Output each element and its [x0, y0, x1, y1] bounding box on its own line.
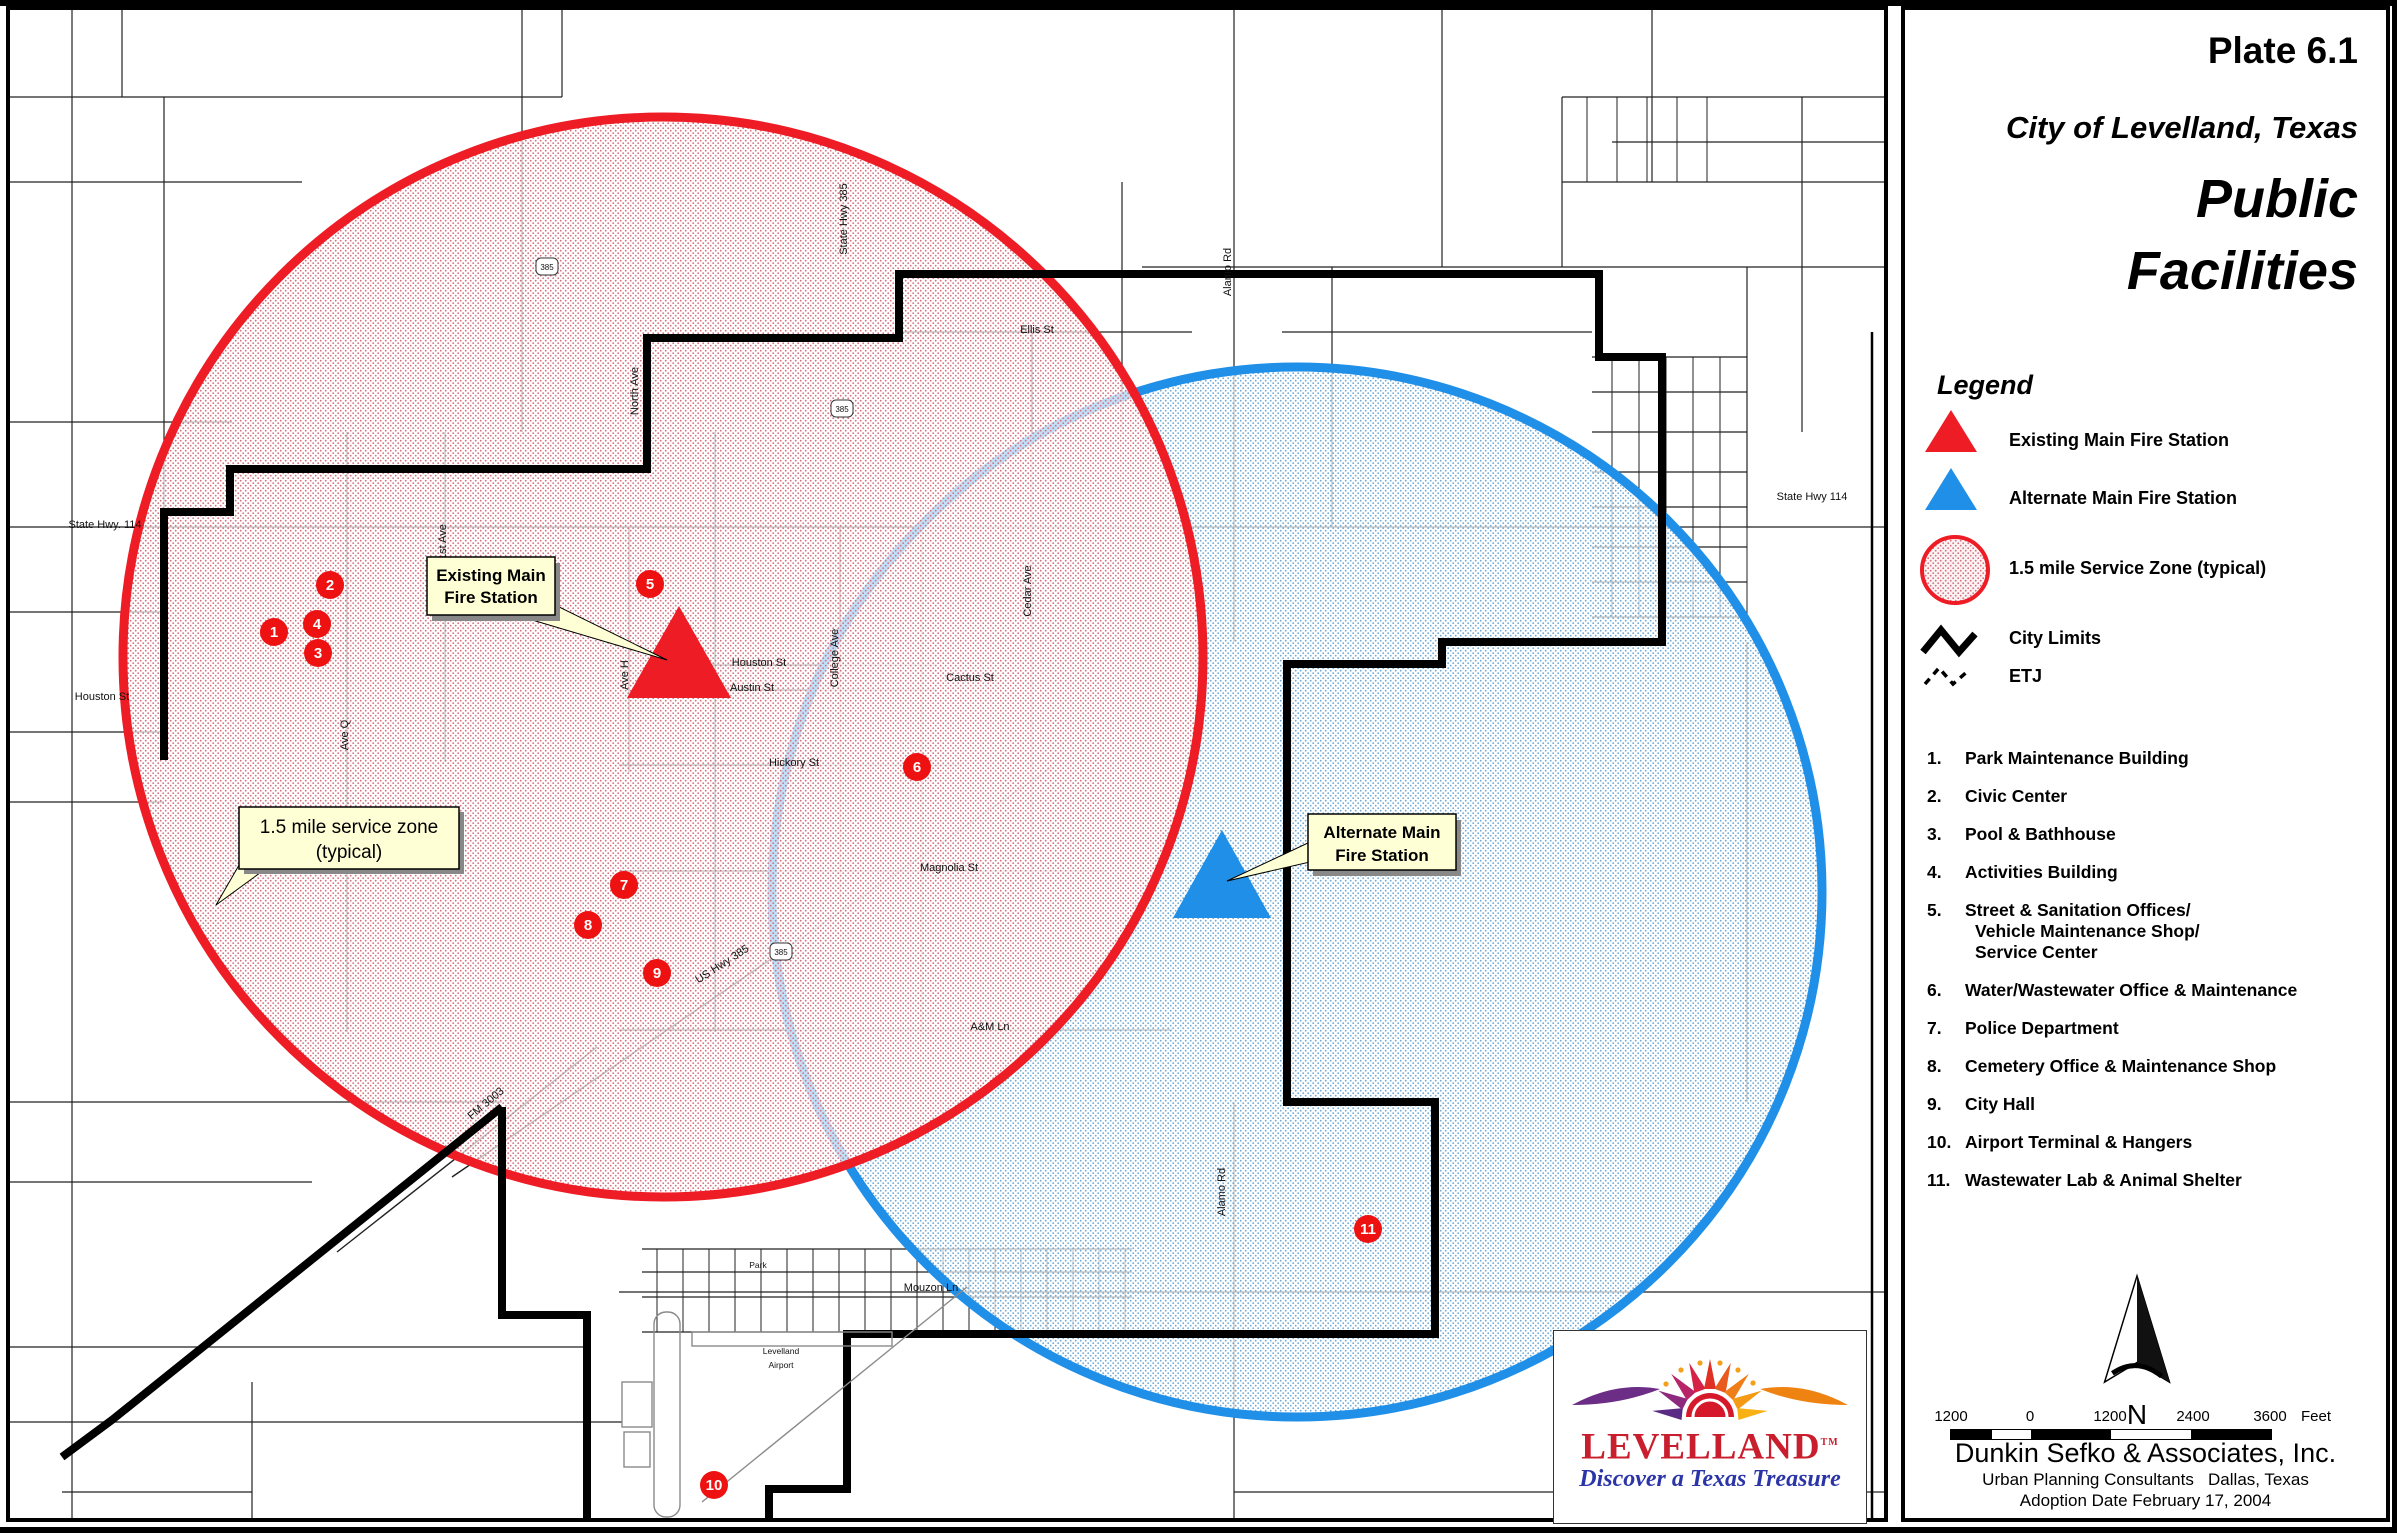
- consultant-subtitle: Urban Planning Consultants Dallas, Texas: [1905, 1470, 2386, 1490]
- legend-item-label: City Limits: [2009, 628, 2101, 649]
- facility-list-item: 6.Water/Wastewater Office & Maintenance: [1927, 980, 2377, 1001]
- facility-number: 1.: [1927, 748, 1965, 769]
- highway-shield-number: 385: [835, 405, 849, 414]
- street-label: A&M Ln: [970, 1021, 1009, 1033]
- highway-shield-number: 385: [774, 948, 788, 957]
- callout-text: Alternate Main: [1323, 823, 1440, 842]
- facility-number: 9.: [1927, 1094, 1965, 1115]
- facility-list-item: 1.Park Maintenance Building: [1927, 748, 2377, 769]
- scale-tick-label: 0: [2026, 1408, 2034, 1425]
- scale-tick-label: 3600: [2253, 1408, 2286, 1425]
- facility-number: 11.: [1927, 1170, 1965, 1191]
- facility-label: Activities Building: [1965, 862, 2118, 883]
- facility-label: Water/Wastewater Office & Maintenance: [1965, 980, 2297, 1001]
- facility-number: 7.: [1927, 1018, 1965, 1039]
- facility-marker-number: 2: [326, 577, 334, 594]
- street-label: College Ave: [829, 629, 841, 688]
- facility-label: City Hall: [1965, 1094, 2035, 1115]
- facility-marker-number: 8: [584, 917, 592, 934]
- facility-label: Civic Center: [1965, 786, 2067, 807]
- street-label: Mouzon Ln: [904, 1282, 958, 1294]
- facility-list-item: 10.Airport Terminal & Hangers: [1927, 1132, 2377, 1153]
- street-label: Park: [749, 1260, 767, 1270]
- facility-number: 2.: [1927, 786, 1965, 807]
- street-label: Levelland: [763, 1346, 800, 1356]
- street-label: North Ave: [629, 367, 641, 415]
- facilities-list: 1.Park Maintenance Building2.Civic Cente…: [1927, 748, 2377, 1208]
- facility-number: 5.: [1927, 900, 1965, 963]
- scale-tick-label: 2400: [2176, 1408, 2209, 1425]
- legend-item-label: Alternate Main Fire Station: [2009, 488, 2237, 509]
- street-label: State Hwy. 114: [69, 519, 142, 531]
- facility-marker-number: 9: [653, 965, 661, 982]
- street-label: Airport: [768, 1360, 794, 1370]
- service-zones: [123, 117, 1822, 1417]
- facility-marker-number: 6: [913, 759, 921, 776]
- logo-tm: TM: [1821, 1437, 1839, 1448]
- plate-number: Plate 6.1: [2208, 30, 2358, 72]
- logo-wordmark: LEVELLANDTM: [1554, 1426, 1866, 1464]
- map-frame: State Hwy. 114Houston St1st AveAve QAve …: [6, 6, 1888, 1522]
- street-label: Ave Q: [339, 719, 351, 750]
- highway-shield-number: 385: [540, 263, 554, 272]
- consultant-name: Dunkin Sefko & Associates, Inc.: [1905, 1438, 2386, 1469]
- facility-list-item: 7.Police Department: [1927, 1018, 2377, 1039]
- street-label: State Hwy 385: [838, 183, 850, 255]
- facility-marker-number: 3: [314, 645, 322, 662]
- facility-number: 4.: [1927, 862, 1965, 883]
- facility-list-item: 9.City Hall: [1927, 1094, 2377, 1115]
- logo-tagline: Discover a Texas Treasure: [1554, 1464, 1866, 1494]
- callout-text: Fire Station: [444, 588, 538, 607]
- city-limits-line-icon: [1919, 622, 1983, 660]
- adoption-date: Adoption Date February 17, 2004: [1905, 1491, 2386, 1511]
- street-label: Magnolia St: [920, 862, 978, 874]
- page-right-border: [2392, 0, 2397, 1533]
- airport-outline: [622, 1287, 967, 1517]
- map-title-line1: Public: [2196, 168, 2358, 230]
- facility-label: Pool & Bathhouse: [1965, 824, 2116, 845]
- scale-unit: Feet: [2301, 1408, 2331, 1425]
- etj-line-icon: [1921, 662, 1977, 692]
- facility-marker-number: 10: [706, 1477, 723, 1494]
- city-title: City of Levelland, Texas: [2006, 110, 2358, 146]
- facility-number: 6.: [1927, 980, 1965, 1001]
- street-label: Ave H: [619, 660, 631, 690]
- facility-number: 8.: [1927, 1056, 1965, 1077]
- facility-number: 10.: [1927, 1132, 1965, 1153]
- scale-tick-label: 1200: [2093, 1408, 2126, 1425]
- legend-item-label: 1.5 mile Service Zone (typical): [2009, 558, 2266, 579]
- facility-list-item: 4.Activities Building: [1927, 862, 2377, 883]
- callout-text: Fire Station: [1335, 846, 1429, 865]
- facility-label: Wastewater Lab & Animal Shelter: [1965, 1170, 2242, 1191]
- city-map: State Hwy. 114Houston St1st AveAve QAve …: [10, 10, 1884, 1518]
- facility-marker-number: 1: [270, 624, 278, 641]
- facility-list-item: 11.Wastewater Lab & Animal Shelter: [1927, 1170, 2377, 1191]
- legend-heading: Legend: [1937, 370, 2033, 401]
- page-bottom-border: [0, 1527, 2397, 1533]
- street-label: Austin St: [730, 682, 774, 694]
- callout-text: 1.5 mile service zone: [260, 817, 438, 838]
- facility-list-item: 8.Cemetery Office & Maintenance Shop: [1927, 1056, 2377, 1077]
- street-label: Cactus St: [946, 672, 994, 684]
- legend-item-label: ETJ: [2009, 666, 2042, 687]
- street-label: Ellis St: [1020, 324, 1054, 336]
- existing-fire-station-triangle-icon: [1923, 408, 1979, 454]
- facility-label: Airport Terminal & Hangers: [1965, 1132, 2192, 1153]
- facility-label: Park Maintenance Building: [1965, 748, 2189, 769]
- callout-text: Existing Main: [436, 566, 546, 585]
- title-legend-panel: Plate 6.1 City of Levelland, Texas Publi…: [1901, 6, 2390, 1522]
- service-zone-circle-icon: [1917, 532, 1993, 608]
- sunburst-icon: [1560, 1331, 1860, 1427]
- facility-marker-number: 11: [1360, 1221, 1376, 1238]
- street-label: Hickory St: [769, 757, 819, 769]
- street-label: State Hwy 114: [1777, 491, 1848, 503]
- street-label: Houston St: [732, 657, 786, 669]
- callout-text: (typical): [316, 842, 383, 863]
- facility-marker-number: 7: [620, 877, 628, 894]
- map-title-line2: Facilities: [2127, 240, 2358, 302]
- scale-tick-label: 1200: [1934, 1408, 1967, 1425]
- street-label: Cedar Ave: [1022, 565, 1034, 616]
- legend-item-label: Existing Main Fire Station: [2009, 430, 2229, 451]
- levelland-logo: LEVELLANDTM Discover a Texas Treasure: [1553, 1330, 1867, 1524]
- facility-label: Street & Sanitation Offices/Vehicle Main…: [1965, 900, 2200, 963]
- street-label: 1st Ave: [437, 524, 449, 560]
- street-label: Alamo Rd: [1222, 248, 1234, 296]
- street-label: Alamo Rd: [1216, 1168, 1228, 1216]
- street-label: Houston St: [75, 691, 129, 703]
- facility-list-item: 5.Street & Sanitation Offices/Vehicle Ma…: [1927, 900, 2377, 963]
- facility-list-item: 2.Civic Center: [1927, 786, 2377, 807]
- facility-list-item: 3.Pool & Bathhouse: [1927, 824, 2377, 845]
- alternate-fire-station-triangle-icon: [1923, 466, 1979, 512]
- facility-label: Police Department: [1965, 1018, 2119, 1039]
- facility-number: 3.: [1927, 824, 1965, 845]
- facility-marker-number: 5: [646, 576, 654, 593]
- facility-marker-number: 4: [313, 616, 322, 633]
- facility-label: Cemetery Office & Maintenance Shop: [1965, 1056, 2276, 1077]
